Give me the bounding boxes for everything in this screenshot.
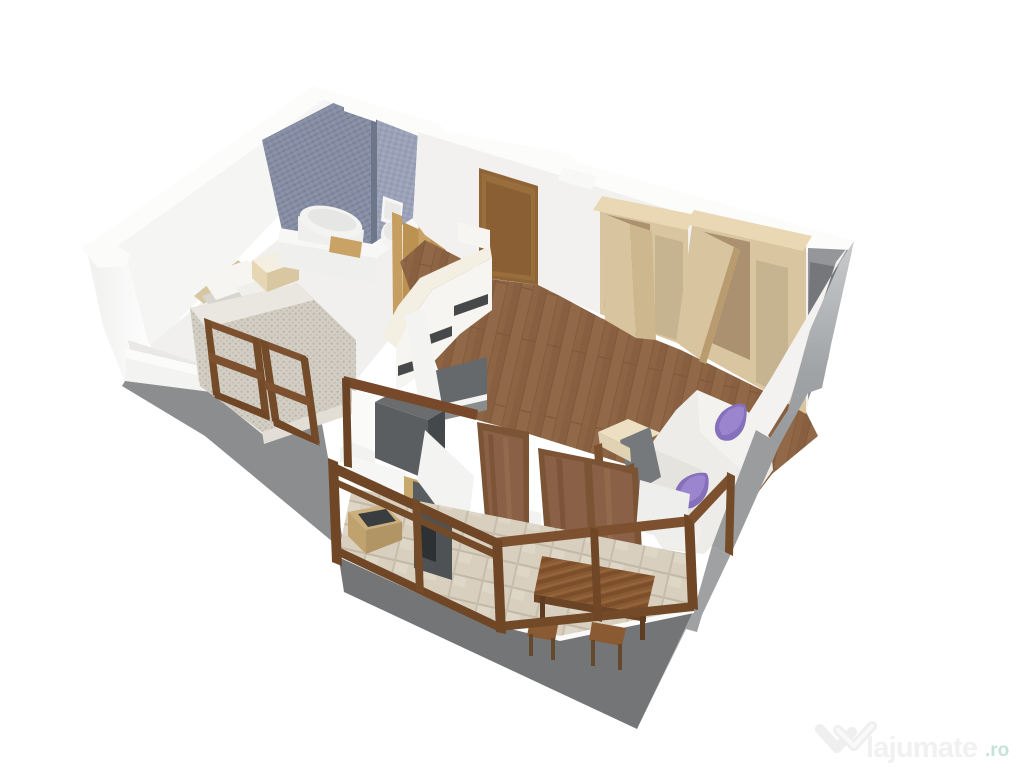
svg-text:lajumate: lajumate xyxy=(866,732,978,764)
svg-text:.ro: .ro xyxy=(985,740,1009,761)
